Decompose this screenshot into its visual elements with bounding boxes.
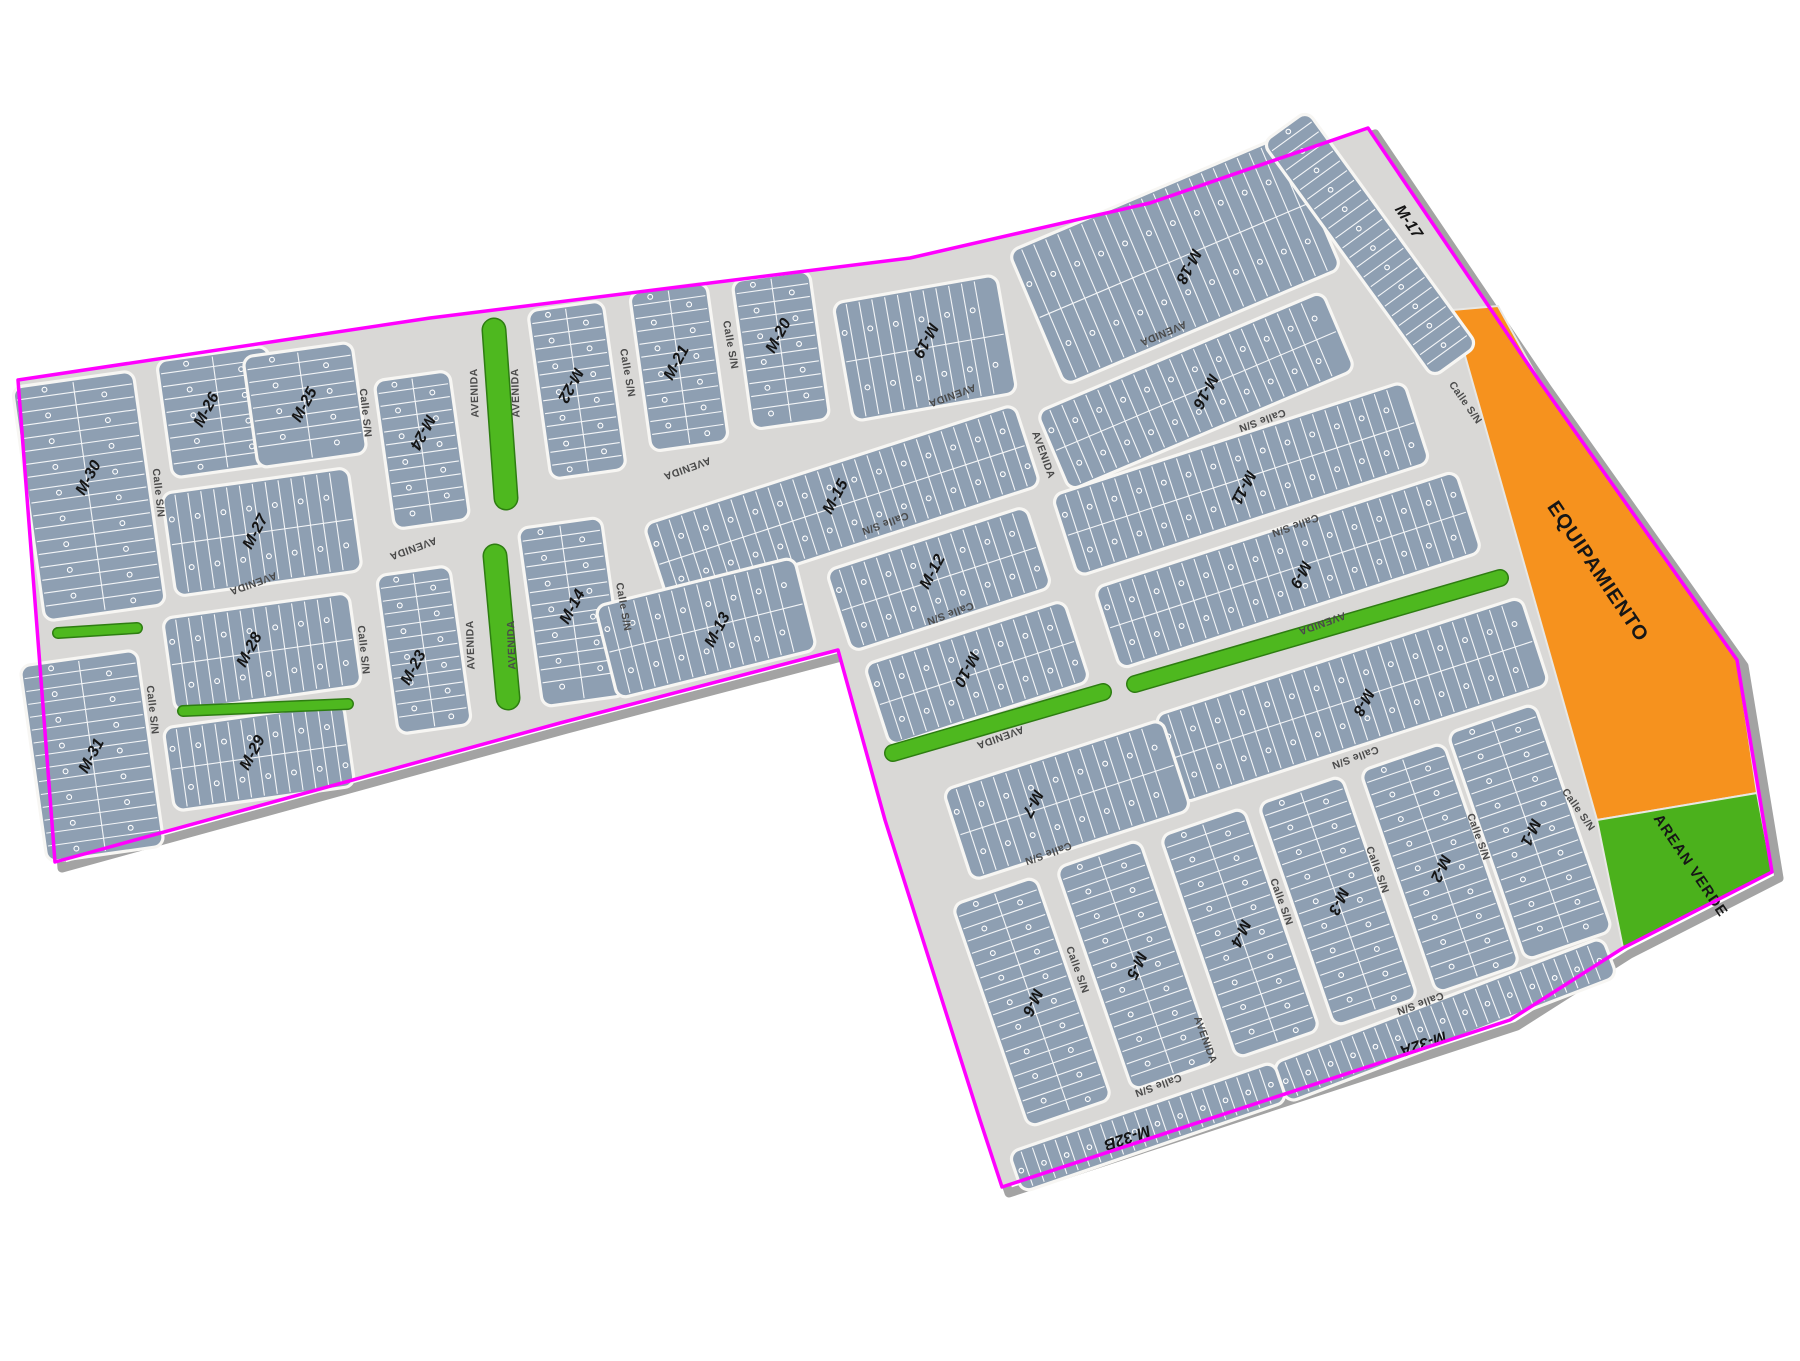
plan-svg: M-30M-31M-26M-25M-24M-23M-27M-28M-29M-22… [0,0,1800,1361]
street-label: AVENIDA [509,368,523,418]
street-label: AVENIDA [468,368,482,418]
avenue-median [494,330,506,498]
street-label: AVENIDA [505,620,519,670]
avenue-median [58,628,137,633]
street-label: AVENIDA [464,620,478,670]
subdivision-plan-map: M-30M-31M-26M-25M-24M-23M-27M-28M-29M-22… [0,0,1800,1361]
